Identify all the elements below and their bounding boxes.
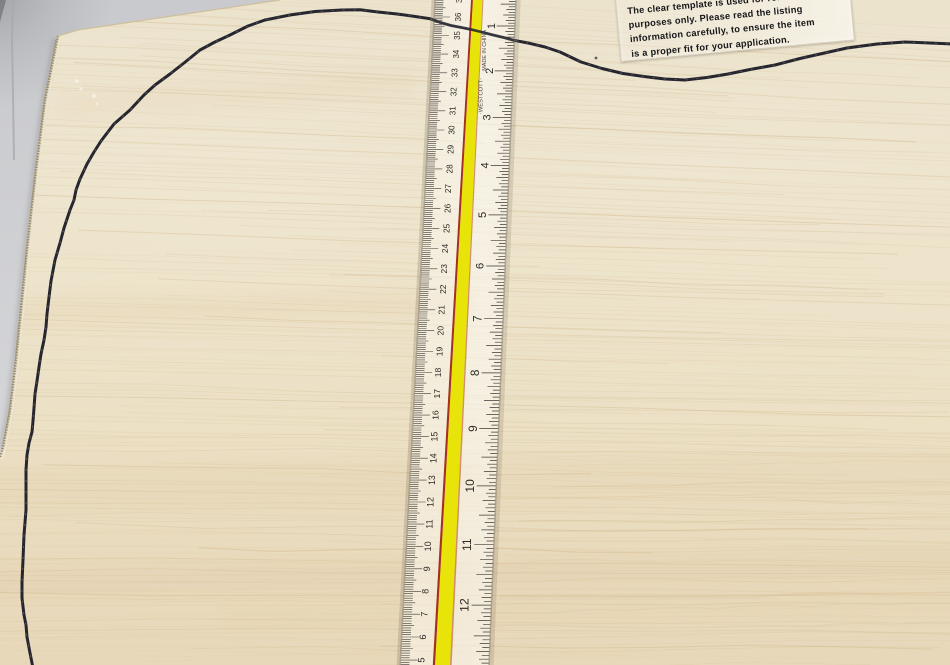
svg-text:3: 3	[482, 114, 494, 120]
svg-text:7: 7	[419, 612, 429, 617]
svg-text:4: 4	[479, 162, 491, 168]
svg-text:26: 26	[443, 203, 453, 213]
svg-text:28: 28	[445, 164, 454, 174]
svg-text:17: 17	[432, 389, 442, 399]
svg-text:16: 16	[431, 410, 441, 420]
svg-text:34: 34	[452, 49, 461, 58]
svg-text:21: 21	[437, 305, 447, 315]
svg-text:25: 25	[441, 223, 451, 233]
svg-text:35: 35	[453, 31, 462, 40]
svg-text:22: 22	[438, 284, 448, 294]
svg-text:6: 6	[475, 263, 487, 269]
svg-text:37: 37	[455, 0, 464, 3]
svg-text:10: 10	[463, 479, 477, 493]
svg-text:9: 9	[466, 425, 480, 432]
svg-text:19: 19	[434, 347, 444, 357]
svg-text:9: 9	[422, 566, 432, 571]
svg-text:20: 20	[436, 326, 446, 336]
svg-text:8: 8	[421, 589, 431, 594]
svg-text:33: 33	[451, 68, 460, 77]
svg-text:5: 5	[417, 658, 427, 663]
svg-text:30: 30	[448, 125, 457, 135]
svg-text:11: 11	[460, 538, 474, 551]
svg-text:1: 1	[486, 23, 498, 29]
svg-text:27: 27	[444, 184, 453, 194]
svg-text:MADE IN CHINA: MADE IN CHINA	[482, 30, 488, 71]
svg-text:12: 12	[426, 497, 436, 507]
svg-text:23: 23	[439, 264, 449, 274]
svg-text:32: 32	[450, 87, 459, 96]
svg-text:7: 7	[472, 315, 485, 321]
svg-text:10: 10	[423, 541, 433, 551]
svg-text:8: 8	[469, 370, 482, 377]
svg-text:14: 14	[428, 453, 438, 463]
svg-text:24: 24	[440, 244, 450, 254]
svg-text:6: 6	[418, 634, 428, 639]
svg-text:·WESTCOTT·: ·WESTCOTT·	[478, 78, 484, 114]
svg-text:31: 31	[449, 106, 458, 115]
svg-text:5: 5	[477, 212, 489, 218]
svg-text:11: 11	[425, 519, 435, 528]
svg-text:12: 12	[457, 598, 471, 612]
svg-text:15: 15	[430, 432, 440, 442]
svg-text:29: 29	[446, 144, 455, 154]
svg-text:36: 36	[454, 13, 463, 22]
svg-text:13: 13	[427, 475, 437, 485]
svg-text:18: 18	[433, 368, 443, 378]
